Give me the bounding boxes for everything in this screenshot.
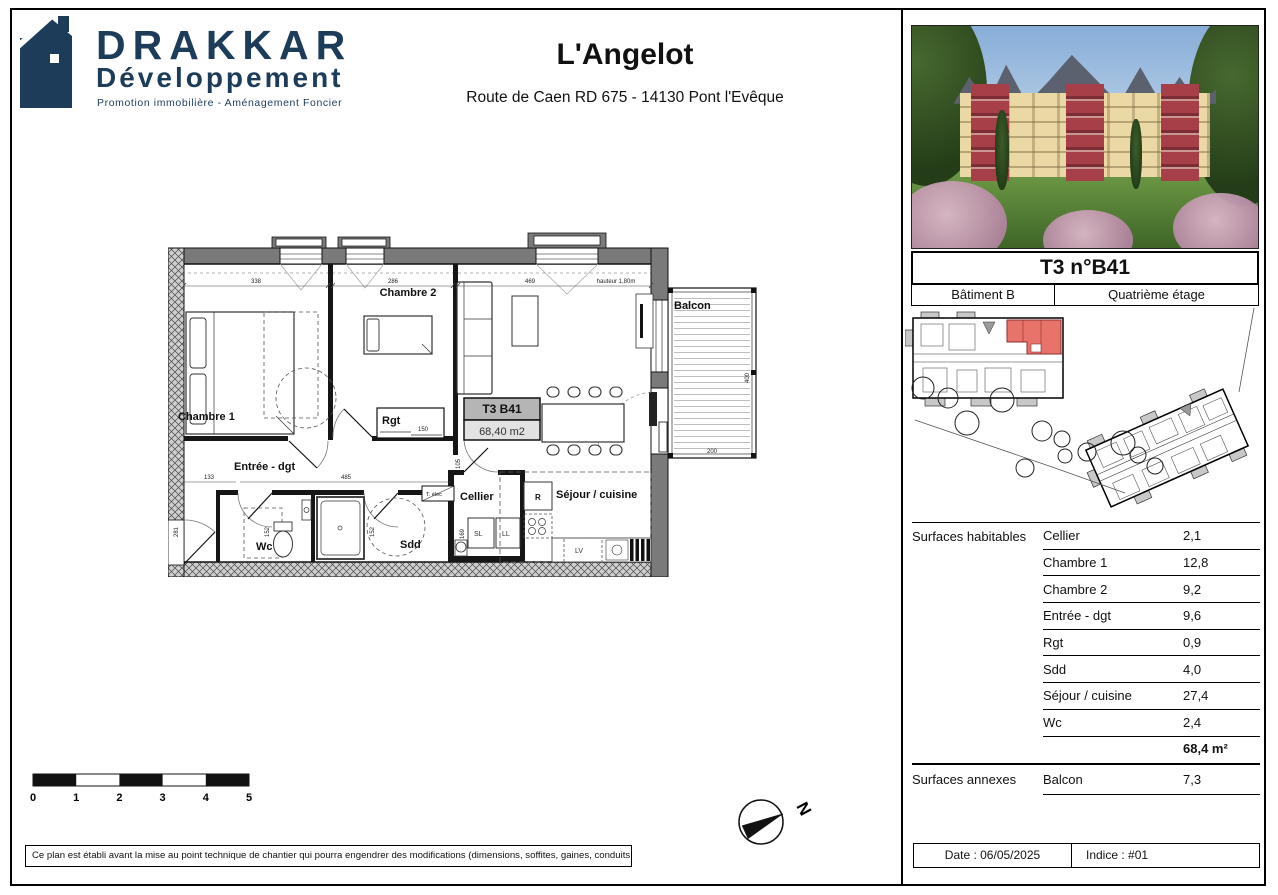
dim-chambre2: 286	[388, 279, 399, 285]
rangement-closet: Rgt 150	[377, 408, 444, 438]
leader-line	[1239, 308, 1254, 392]
scale-bar: 0 1 2 3 4 5	[30, 766, 265, 808]
scale-tick-2: 2	[116, 792, 122, 804]
table-annex-row: Surfaces annexes Balcon7,3	[912, 765, 1260, 795]
row-value: 2,1	[1183, 528, 1260, 543]
ll-label: LL	[502, 531, 510, 538]
rgt-label: Rgt	[382, 415, 401, 427]
north-label: N	[792, 799, 815, 819]
telec-label: T. élec	[426, 492, 442, 498]
photo-cypress-1	[995, 110, 1009, 190]
row-label: Wc	[1043, 715, 1183, 730]
row-label: Entrée - dgt	[1043, 608, 1183, 623]
row-value: 4,0	[1183, 662, 1260, 677]
chambre2-furniture	[364, 316, 432, 354]
site-building-a	[905, 312, 1063, 406]
row-value: 12,8	[1183, 555, 1260, 570]
brand-tagline: Promotion immobilière - Aménagement Fonc…	[97, 97, 342, 109]
site-plan	[905, 308, 1263, 520]
photo-blossom-center	[1043, 210, 1133, 249]
dim-h-entree: 281	[174, 526, 180, 537]
row-label: Balcon	[1043, 772, 1183, 787]
footer-indice: Indice : #01	[1072, 844, 1259, 867]
unit-subinfo: Bâtiment B Quatrième étage	[911, 285, 1259, 306]
table-row: Surfaces habitables Cellier2,1	[912, 523, 1260, 550]
sejour-label: Séjour / cuisine	[556, 489, 637, 501]
wc-label: Wc	[256, 541, 273, 553]
building-render-photo	[911, 25, 1259, 249]
table-row: Séjour / cuisine27,4	[912, 683, 1260, 710]
dim-entree-b: 485	[341, 475, 352, 481]
row-label: Cellier	[1043, 528, 1183, 543]
unit-building: Bâtiment B	[912, 285, 1055, 305]
right-panel: T3 n°B41 Bâtiment B Quatrième étage	[901, 8, 1268, 886]
row-label: Séjour / cuisine	[1043, 688, 1183, 703]
scale-tick-3: 3	[160, 792, 166, 804]
sl-label: SL	[474, 531, 483, 538]
dim-chambre1: 338	[251, 279, 262, 285]
program-address: Route de Caen RD 675 - 14130 Pont l'Evêq…	[380, 89, 870, 107]
row-value: 7,3	[1183, 772, 1260, 787]
table-row: Rgt0,9	[912, 630, 1260, 657]
row-label: Chambre 2	[1043, 582, 1183, 597]
balcon-label: Balcon	[674, 300, 711, 312]
chambre1-label: Chambre 1	[178, 411, 235, 423]
footer-box: Date : 06/05/2025 Indice : #01	[913, 843, 1260, 868]
plan-unit-name: T3 B41	[482, 402, 522, 416]
dim-h-passage: 105	[456, 458, 462, 469]
table-row: Wc2,4	[912, 710, 1260, 737]
row-value: 2,4	[1183, 715, 1260, 730]
brand-subname: Développement	[96, 62, 344, 94]
photo-balcony-column-2	[1066, 84, 1104, 182]
row-value: 27,4	[1183, 688, 1260, 703]
row-label: Sdd	[1043, 662, 1183, 677]
dim-rgt: 150	[418, 427, 429, 433]
photo-balcony-column-3	[1161, 84, 1199, 182]
unit-floor: Quatrième étage	[1055, 285, 1258, 305]
row-label: Rgt	[1043, 635, 1183, 650]
disclaimer-note: Ce plan est établi avant la mise au poin…	[25, 845, 632, 867]
dim-entree-a: 133	[204, 475, 215, 481]
photo-cypress-2	[1130, 119, 1142, 189]
balcony: Balcon 200 400	[668, 288, 756, 458]
footer-date: Date : 06/05/2025	[914, 844, 1072, 867]
row-value: 0,9	[1183, 635, 1260, 650]
unit-title: T3 n°B41	[911, 251, 1259, 285]
floor-plan-drawing: Balcon 200 400	[168, 232, 768, 577]
scale-tick-0: 0	[30, 792, 36, 804]
table-row: Entrée - dgt9,6	[912, 603, 1260, 630]
surfaces-annexes-label: Surfaces annexes	[912, 765, 1043, 795]
surfaces-habitables-label: Surfaces habitables	[912, 523, 1043, 550]
program-title: L'Angelot	[380, 38, 870, 72]
entree-label: Entrée - dgt	[234, 461, 295, 473]
chambre2-label: Chambre 2	[380, 287, 437, 299]
dim-sejour: 469	[525, 279, 536, 285]
row-label: Chambre 1	[1043, 555, 1183, 570]
scale-tick-5: 5	[246, 792, 252, 804]
row-value: 9,2	[1183, 582, 1260, 597]
dim-balcon-width: 200	[707, 449, 718, 455]
table-row: Chambre 112,8	[912, 550, 1260, 577]
wc-fixtures	[244, 500, 311, 558]
sdd-label: Sdd	[400, 539, 421, 551]
dim-balcon-height: 400	[745, 372, 751, 383]
surfaces-total: 68,4 m²	[1183, 741, 1260, 756]
plan-unit-area: 68,40 m2	[479, 426, 525, 438]
table-row: Chambre 29,2	[912, 576, 1260, 603]
site-building-b	[1075, 382, 1251, 518]
fridge-label: R	[535, 493, 541, 502]
plan-unit-box: T3 B41 68,40 m2	[464, 398, 540, 440]
dim-hauteur: hauteur 1,80m	[597, 279, 636, 285]
row-value: 9,6	[1183, 608, 1260, 623]
table-row: Sdd4,0	[912, 656, 1260, 683]
dim-h-sdd: 152	[370, 526, 376, 537]
scale-tick-1: 1	[73, 792, 79, 804]
surfaces-table: Surfaces habitables Cellier2,1 Chambre 1…	[912, 522, 1260, 795]
cellier-label: Cellier	[460, 491, 494, 503]
drakkar-logo-icon	[20, 14, 76, 110]
scale-tick-4: 4	[203, 792, 210, 804]
lv-label: LV	[575, 548, 583, 555]
dim-h-cellier: 169	[460, 528, 466, 539]
table-total-row: 68,4 m²	[912, 737, 1260, 761]
photo-blossom-right	[1173, 193, 1259, 249]
photo-blossom-left	[911, 181, 1007, 249]
dim-h-wc: 152	[265, 526, 271, 537]
north-arrow: N	[726, 786, 826, 861]
